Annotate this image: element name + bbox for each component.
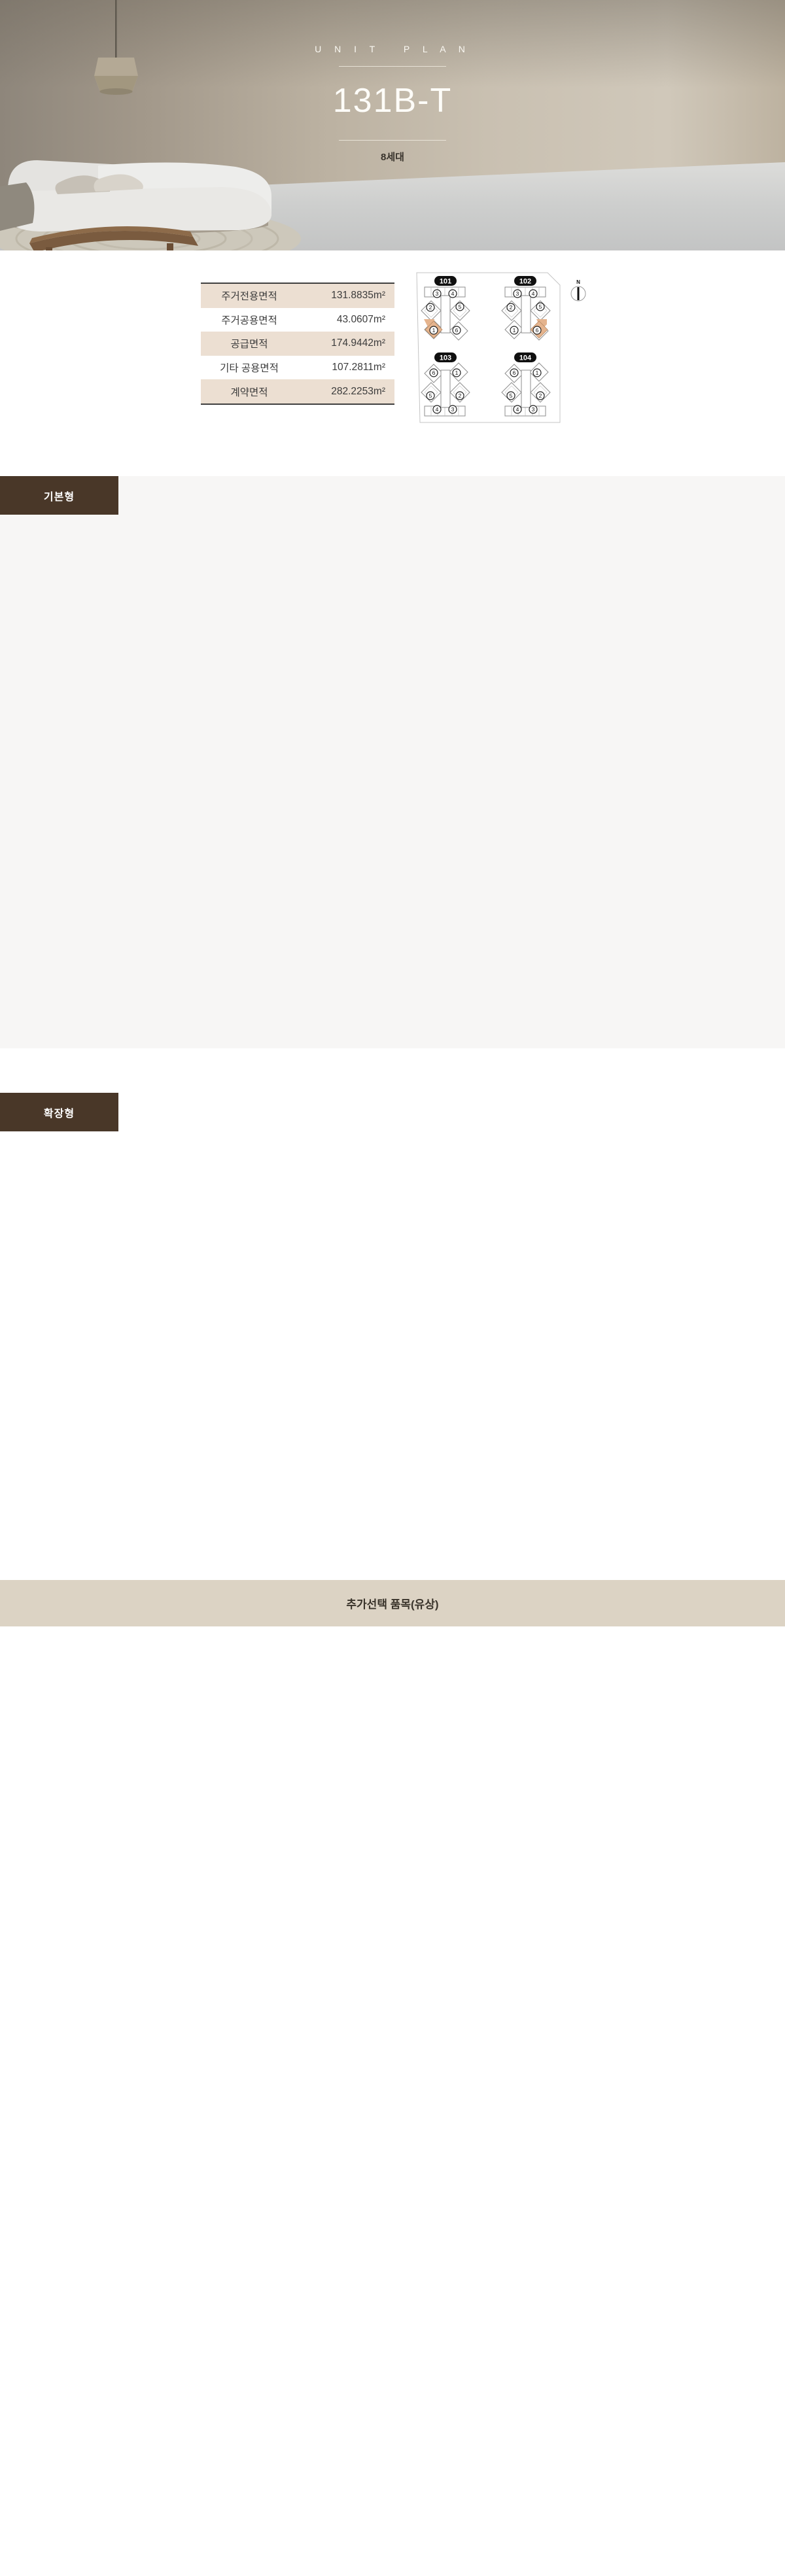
svg-text:104: 104 [519,354,532,362]
svg-text:N: N [576,279,580,285]
svg-text:103: 103 [440,354,451,362]
svg-text:101: 101 [440,278,451,286]
svg-text:102: 102 [519,278,531,286]
